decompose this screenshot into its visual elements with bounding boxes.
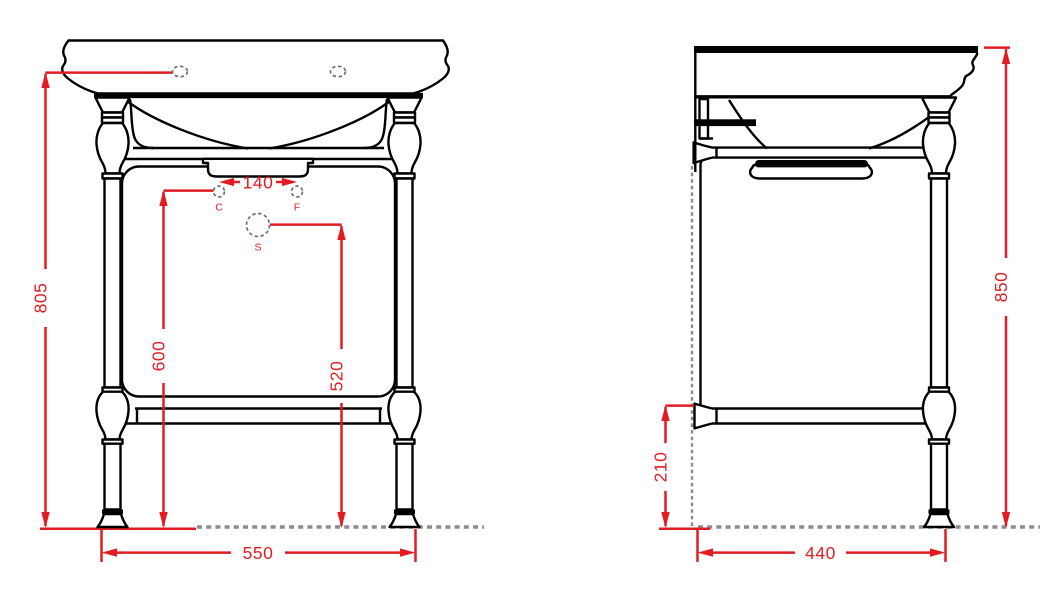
washbasin-front-edge-side — [951, 53, 978, 96]
dim-label-140: 140 — [243, 173, 274, 193]
bowl-curve-left — [127, 101, 248, 149]
dimension-850: 850 — [984, 48, 1011, 528]
dim-label-550: 550 — [243, 543, 274, 563]
technical-drawing-canvas: 805 600 520 140 — [0, 0, 1061, 595]
hole-label-s: S — [254, 242, 261, 254]
dim-label-600: 600 — [149, 341, 169, 372]
side-view: 850 210 440 — [651, 46, 1041, 563]
washbasin-console-drawing: 805 600 520 140 — [0, 0, 1061, 595]
arrow-up-210 — [661, 405, 669, 421]
dimension-550: 550 — [102, 529, 416, 563]
bowl-curve-right — [269, 101, 390, 149]
arrow-left-550 — [102, 548, 118, 556]
drain-cover-rim-side — [755, 160, 868, 167]
tap-hole-right — [331, 66, 346, 76]
arrow-down-805 — [41, 512, 49, 528]
arrow-up-850 — [1002, 48, 1010, 64]
arrow-up-805 — [41, 72, 49, 88]
back-panel-edge-side — [701, 159, 709, 406]
shelf-end-flare-side — [695, 404, 713, 429]
leg-side — [922, 98, 956, 528]
washbasin-top-side — [694, 46, 978, 53]
arrow-down-210 — [661, 512, 669, 528]
hole-label-f: F — [294, 202, 300, 214]
dim-label-520: 520 — [327, 361, 347, 392]
dimension-440: 440 — [698, 529, 946, 563]
arrow-left-440 — [698, 548, 714, 556]
hole-label-c: C — [215, 202, 223, 214]
dim-label-210: 210 — [651, 452, 671, 483]
connection-hole-c — [214, 186, 225, 197]
washbasin-front — [62, 41, 449, 94]
front-view: 805 600 520 140 — [31, 41, 485, 564]
arrow-right-550 — [400, 548, 416, 556]
dim-label-805: 805 — [31, 283, 51, 314]
arrow-down-600 — [159, 512, 167, 528]
dim-label-850: 850 — [991, 272, 1011, 303]
dimension-210: 210 — [651, 405, 695, 528]
connection-hole-f — [292, 186, 303, 197]
wall-bracket-bar-side — [694, 119, 756, 126]
wall-bracket-side — [700, 99, 709, 139]
tap-hole-left — [173, 66, 188, 76]
drain-hole-s — [247, 214, 270, 237]
dim-label-440: 440 — [805, 543, 836, 563]
arrow-right-440 — [930, 548, 946, 556]
